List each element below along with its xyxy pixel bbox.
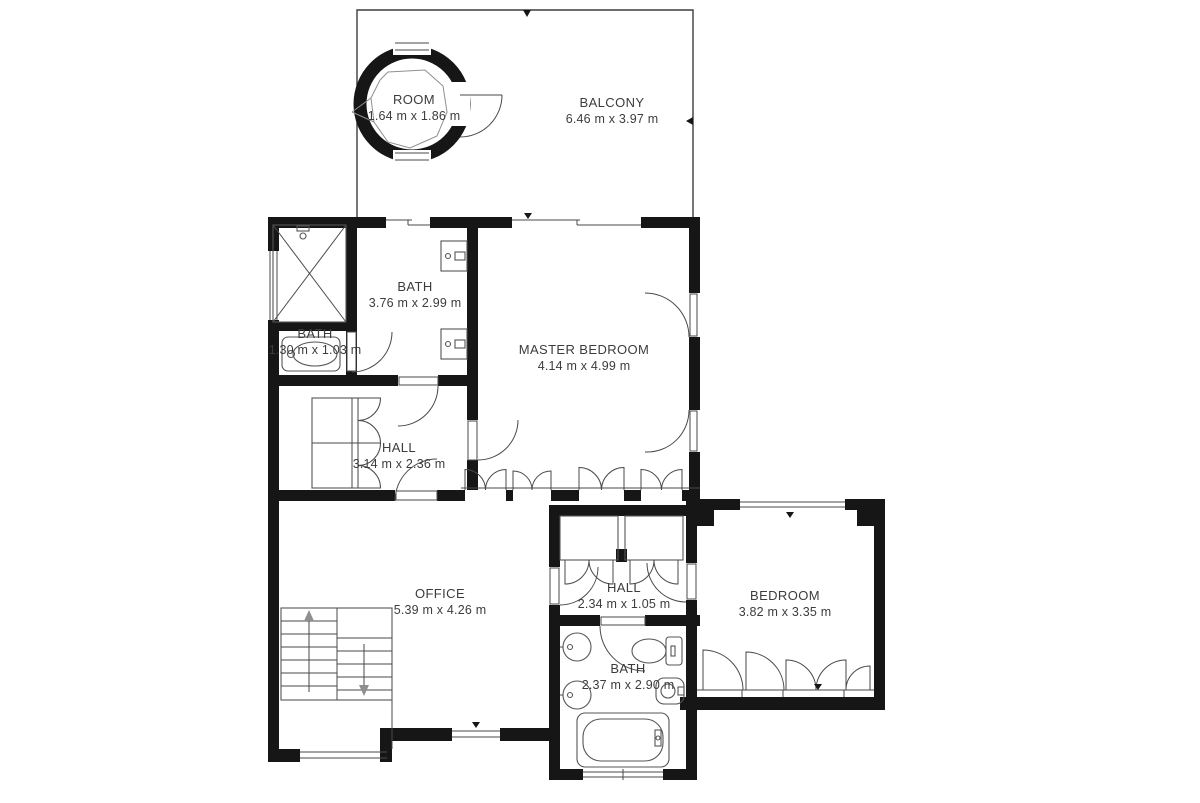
room-name: BALCONY (566, 95, 659, 111)
window (300, 752, 387, 758)
room-dimensions: 4.14 m x 4.99 m (519, 358, 650, 374)
shower-icon (273, 225, 346, 322)
room-dimensions: 3.14 m x 2.36 m (353, 456, 446, 472)
bathtub-icon (577, 713, 669, 767)
room-label-bath-lower: BATH 2.37 m x 2.90 m (582, 661, 675, 693)
room-dimensions: 3.76 m x 2.99 m (369, 295, 462, 311)
door-arc (468, 420, 518, 460)
room-label-balcony: BALCONY 6.46 m x 3.97 m (566, 95, 659, 127)
door-arc (398, 377, 438, 426)
room-label-hall-lower: HALL 2.34 m x 1.05 m (578, 580, 671, 612)
walls (268, 217, 885, 780)
room-name: BATH (369, 279, 462, 295)
room-label-bath-small: BATH 1.30 m x 1.03 m (269, 326, 362, 358)
room-label-hall-upper: HALL 3.14 m x 2.36 m (353, 440, 446, 472)
stairs-icon (281, 608, 392, 749)
window (583, 769, 663, 780)
room-dimensions: 3.82 m x 3.35 m (739, 604, 832, 620)
room-label-bedroom: BEDROOM 3.82 m x 3.35 m (739, 588, 832, 620)
room-name: HALL (353, 440, 446, 456)
room-dimensions: 1.30 m x 1.03 m (269, 342, 362, 358)
room-dimensions: 2.34 m x 1.05 m (578, 596, 671, 612)
room-label-bath-upper: BATH 3.76 m x 2.99 m (369, 279, 462, 311)
room-name: ROOM (368, 92, 461, 108)
room-dimensions: 1.64 m x 1.86 m (368, 108, 461, 124)
door-arc (645, 410, 697, 452)
room-dimensions: 2.37 m x 2.90 m (582, 677, 675, 693)
door-arc (645, 293, 697, 337)
room-name: OFFICE (394, 586, 487, 602)
window (452, 722, 500, 737)
room-name: BATH (582, 661, 675, 677)
window (512, 213, 641, 225)
room-name: BEDROOM (739, 588, 832, 604)
room-label-office: OFFICE 5.39 m x 4.26 m (394, 586, 487, 618)
closet-bifold-doors (461, 468, 700, 491)
room-dimensions: 5.39 m x 4.26 m (394, 602, 487, 618)
room-name: BATH (269, 326, 362, 342)
room-label-tower-room: ROOM 1.64 m x 1.86 m (368, 92, 461, 124)
room-dimensions: 6.46 m x 3.97 m (566, 111, 659, 127)
closet-bifold-doors (697, 650, 874, 697)
window (386, 220, 430, 225)
room-name: HALL (578, 580, 671, 596)
room-name: MASTER BEDROOM (519, 342, 650, 358)
floorplan-page: ROOM 1.64 m x 1.86 m BALCONY 6.46 m x 3.… (0, 0, 1200, 803)
window (740, 502, 845, 518)
room-label-master-bedroom: MASTER BEDROOM 4.14 m x 4.99 m (519, 342, 650, 374)
